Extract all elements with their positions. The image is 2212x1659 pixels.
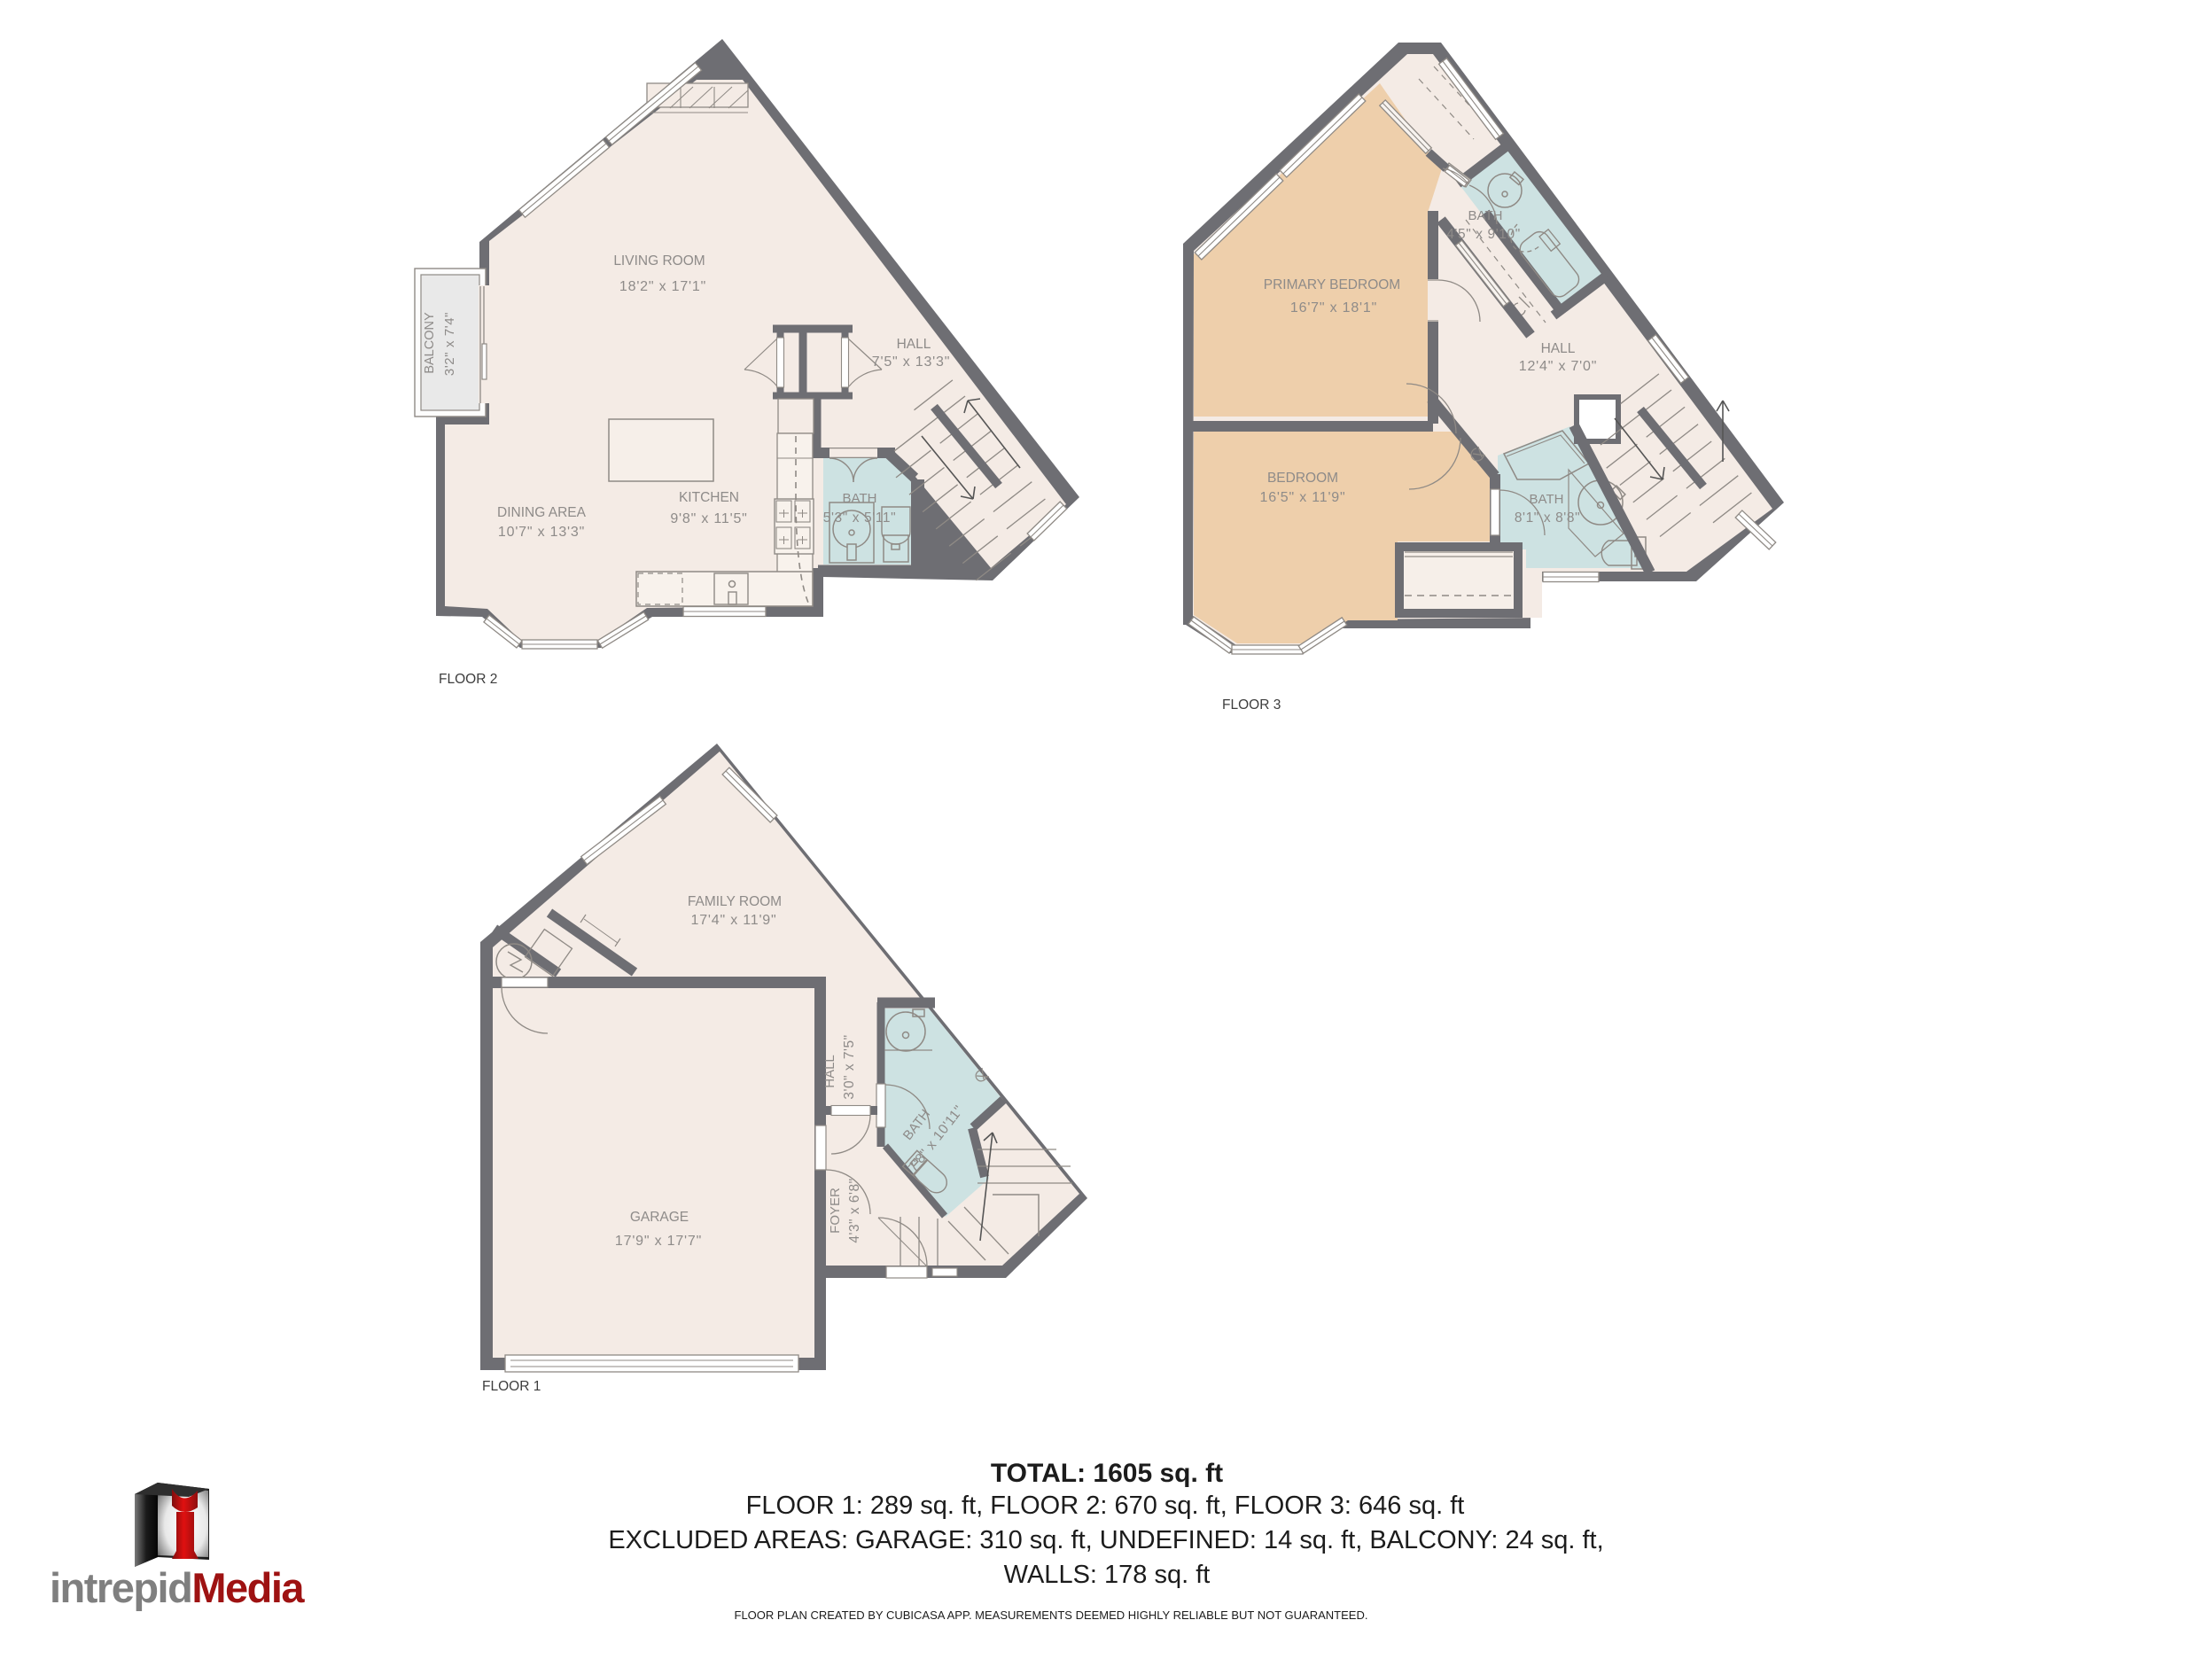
svg-text:FAMILY ROOM: FAMILY ROOM [688, 894, 782, 909]
svg-text:BALCONY: BALCONY [423, 312, 437, 374]
svg-text:10'7" x 13'3": 10'7" x 13'3" [498, 525, 585, 540]
svg-text:HALL: HALL [822, 1055, 837, 1088]
svg-text:17'4" x 11'9": 17'4" x 11'9" [691, 913, 777, 928]
svg-text:5'3" x 5'11": 5'3" x 5'11" [823, 510, 896, 526]
svg-text:FLOOR 3: FLOOR 3 [1222, 697, 1281, 713]
svg-text:BATH: BATH [843, 491, 877, 506]
svg-text:FLOOR 2: FLOOR 2 [439, 672, 497, 687]
svg-text:3'0" x 7'5": 3'0" x 7'5" [842, 1034, 857, 1099]
svg-text:BATH: BATH [1530, 492, 1564, 507]
svg-text:GARAGE: GARAGE [630, 1210, 689, 1225]
svg-text:7'5" x 13'3": 7'5" x 13'3" [872, 354, 950, 370]
svg-text:intrepidMedia: intrepidMedia [50, 1564, 305, 1611]
svg-text:LIVING ROOM: LIVING ROOM [613, 253, 705, 269]
svg-text:BEDROOM: BEDROOM [1267, 471, 1338, 486]
svg-text:KITCHEN: KITCHEN [679, 490, 739, 505]
svg-text:FLOOR 1: 289 sq. ft, FLOOR 2:: FLOOR 1: 289 sq. ft, FLOOR 2: 670 sq. ft… [746, 1492, 1465, 1520]
svg-text:TOTAL: 1605 sq. ft: TOTAL: 1605 sq. ft [991, 1459, 1223, 1488]
svg-text:FLOOR PLAN CREATED BY CUBICASA: FLOOR PLAN CREATED BY CUBICASA APP. MEAS… [735, 1608, 1368, 1622]
svg-text:EXCLUDED AREAS: GARAGE: 310 sq: EXCLUDED AREAS: GARAGE: 310 sq. ft, UNDE… [608, 1526, 1603, 1554]
svg-text:3'2" x 7'4": 3'2" x 7'4" [442, 312, 457, 376]
svg-text:FOYER: FOYER [828, 1188, 843, 1234]
svg-text:WALLS: 178 sq. ft: WALLS: 178 sq. ft [1004, 1561, 1211, 1589]
svg-text:12'4" x 7'0": 12'4" x 7'0" [1519, 359, 1597, 374]
svg-text:4'5" x 9'10": 4'5" x 9'10" [1446, 227, 1521, 242]
svg-text:4'3" x 6'8": 4'3" x 6'8" [847, 1178, 862, 1242]
svg-text:18'2" x 17'1": 18'2" x 17'1" [619, 279, 706, 294]
svg-text:FLOOR 1: FLOOR 1 [482, 1379, 541, 1394]
svg-text:BATH: BATH [1468, 208, 1503, 223]
svg-text:PRIMARY BEDROOM: PRIMARY BEDROOM [1264, 277, 1400, 292]
svg-text:DINING AREA: DINING AREA [497, 505, 587, 520]
svg-text:16'7" x 18'1": 16'7" x 18'1" [1290, 300, 1377, 315]
svg-text:16'5" x 11'9": 16'5" x 11'9" [1260, 490, 1346, 505]
svg-text:HALL: HALL [1541, 341, 1576, 356]
svg-text:17'9" x 17'7": 17'9" x 17'7" [615, 1234, 702, 1249]
svg-text:8'1" x 8'8": 8'1" x 8'8" [1515, 510, 1580, 526]
svg-text:9'8" x 11'5": 9'8" x 11'5" [670, 511, 747, 526]
svg-text:HALL: HALL [897, 337, 931, 352]
